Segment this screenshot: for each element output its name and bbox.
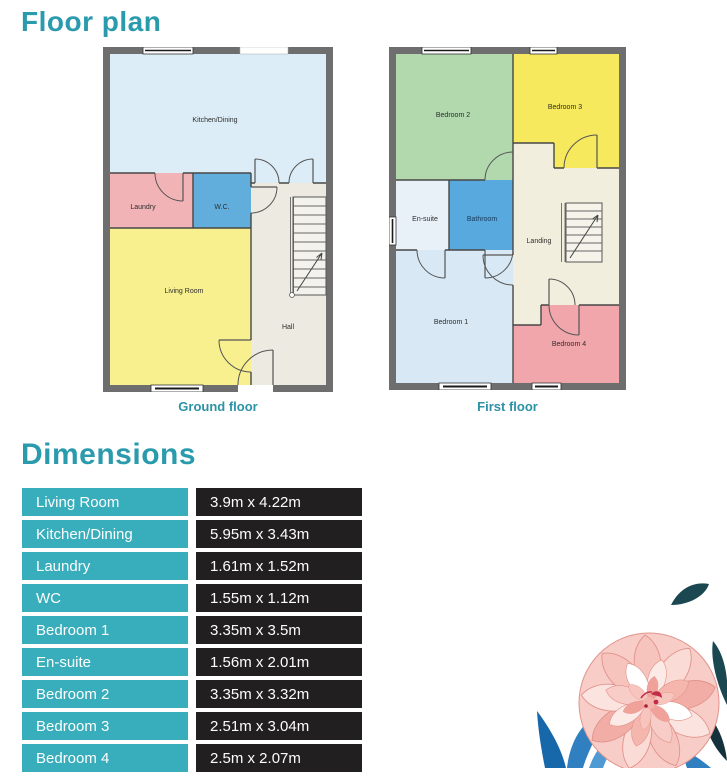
- room-label: Hall: [282, 324, 295, 331]
- ground-room-wc: [193, 173, 251, 228]
- table-row: En-suite 1.56m x 2.01m: [22, 648, 362, 676]
- table-row: Laundry 1.61m x 1.52m: [22, 552, 362, 580]
- room-size-cell: 1.61m x 1.52m: [196, 552, 362, 580]
- page-title: Floor plan: [21, 6, 161, 38]
- ground-floor-caption: Ground floor: [103, 399, 333, 414]
- first-room-bathroom: [449, 180, 513, 250]
- ground-floor-plan: Kitchen/Dining Laundry W.C. Living Room …: [103, 47, 333, 392]
- room-size-cell: 3.35m x 3.32m: [196, 680, 362, 708]
- dimensions-table: Living Room 3.9m x 4.22m Kitchen/Dining …: [22, 488, 362, 776]
- table-row: Kitchen/Dining 5.95m x 3.43m: [22, 520, 362, 548]
- table-row: WC 1.55m x 1.12m: [22, 584, 362, 612]
- room-size-cell: 1.56m x 2.01m: [196, 648, 362, 676]
- room-label: W.C.: [214, 204, 229, 211]
- room-size-cell: 3.35m x 3.5m: [196, 616, 362, 644]
- room-label: Laundry: [130, 204, 156, 211]
- table-row: Bedroom 3 2.51m x 3.04m: [22, 712, 362, 740]
- first-floor-caption: First floor: [389, 399, 626, 414]
- room-name-cell: Laundry: [22, 552, 188, 580]
- room-label: Bedroom 1: [434, 319, 468, 326]
- table-row: Living Room 3.9m x 4.22m: [22, 488, 362, 516]
- room-size-cell: 1.55m x 1.12m: [196, 584, 362, 612]
- room-name-cell: Bedroom 1: [22, 616, 188, 644]
- first-room-ensuite: [396, 180, 449, 250]
- first-floor-plan: Bedroom 2 Bedroom 3 En-suite Bathroom La…: [389, 47, 626, 390]
- room-name-cell: En-suite: [22, 648, 188, 676]
- room-label: Kitchen/Dining: [192, 117, 237, 124]
- room-label: Bathroom: [467, 216, 498, 223]
- ground-room-living: [110, 228, 251, 385]
- first-stairs: [562, 203, 603, 262]
- ground-stairs: [290, 197, 326, 297]
- front-door-opening: [238, 385, 273, 392]
- room-name-cell: Bedroom 3: [22, 712, 188, 740]
- room-label: Bedroom 4: [552, 341, 586, 348]
- room-label: En-suite: [412, 216, 438, 223]
- flower-illustration: [537, 583, 727, 768]
- dimensions-title: Dimensions: [21, 438, 196, 472]
- room-label: Living Room: [165, 288, 204, 295]
- room-size-cell: 3.9m x 4.22m: [196, 488, 362, 516]
- room-label: Landing: [527, 238, 552, 245]
- table-row: Bedroom 2 3.35m x 3.32m: [22, 680, 362, 708]
- room-label: Bedroom 3: [548, 104, 582, 111]
- room-name-cell: Bedroom 2: [22, 680, 188, 708]
- room-size-cell: 2.51m x 3.04m: [196, 712, 362, 740]
- room-size-cell: 5.95m x 3.43m: [196, 520, 362, 548]
- room-name-cell: WC: [22, 584, 188, 612]
- table-row: Bedroom 1 3.35m x 3.5m: [22, 616, 362, 644]
- first-room-bedroom1: [396, 250, 513, 383]
- room-label: Bedroom 2: [436, 112, 470, 119]
- room-name-cell: Kitchen/Dining: [22, 520, 188, 548]
- room-name-cell: Living Room: [22, 488, 188, 516]
